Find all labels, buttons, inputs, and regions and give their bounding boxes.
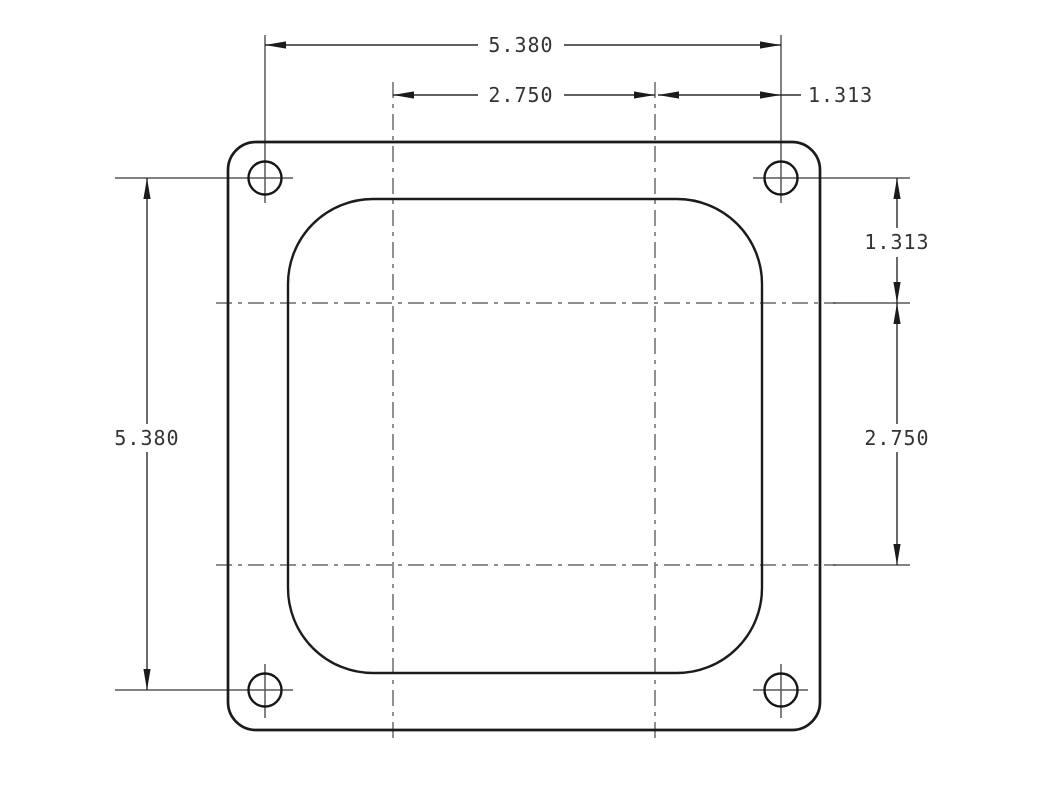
- dimension-value: 2.750: [488, 83, 553, 107]
- dimension-top-hole-offset: 1.313: [658, 83, 873, 107]
- dimension-value: 1.313: [864, 230, 929, 254]
- arrow-right-icon: [760, 41, 781, 48]
- flange-gasket-drawing: 5.380 2.750 1.313 5.380: [0, 0, 1042, 801]
- plate-outline: [228, 142, 820, 730]
- dimension-right-bore-span: 2.750: [864, 303, 929, 565]
- dimension-left-overall: 5.380: [114, 178, 179, 690]
- arrow-up-icon: [893, 303, 900, 324]
- arrow-down-icon: [893, 544, 900, 565]
- part-geometry: [228, 142, 820, 730]
- dimension-value: 5.380: [114, 426, 179, 450]
- dimension-right-upper-offset: 1.313: [864, 178, 929, 303]
- arrow-up-icon: [143, 178, 150, 199]
- dimension-value: 1.313: [808, 83, 873, 107]
- arrow-right-icon: [634, 91, 655, 98]
- arrow-up-icon: [893, 178, 900, 199]
- arrow-down-icon: [893, 282, 900, 303]
- arrow-right-icon: [760, 91, 781, 98]
- extension-lines: [115, 35, 910, 718]
- arrow-left-icon: [393, 91, 414, 98]
- dimension-top-overall: 5.380: [265, 33, 781, 57]
- arrow-left-icon: [265, 41, 286, 48]
- dimension-value: 2.750: [864, 426, 929, 450]
- arrow-left-icon: [658, 91, 679, 98]
- bore-outline: [288, 199, 762, 673]
- arrow-down-icon: [143, 669, 150, 690]
- dimension-value: 5.380: [488, 33, 553, 57]
- dimension-top-bore-span: 2.750: [393, 83, 655, 107]
- drawing-canvas: 5.380 2.750 1.313 5.380: [0, 0, 1042, 801]
